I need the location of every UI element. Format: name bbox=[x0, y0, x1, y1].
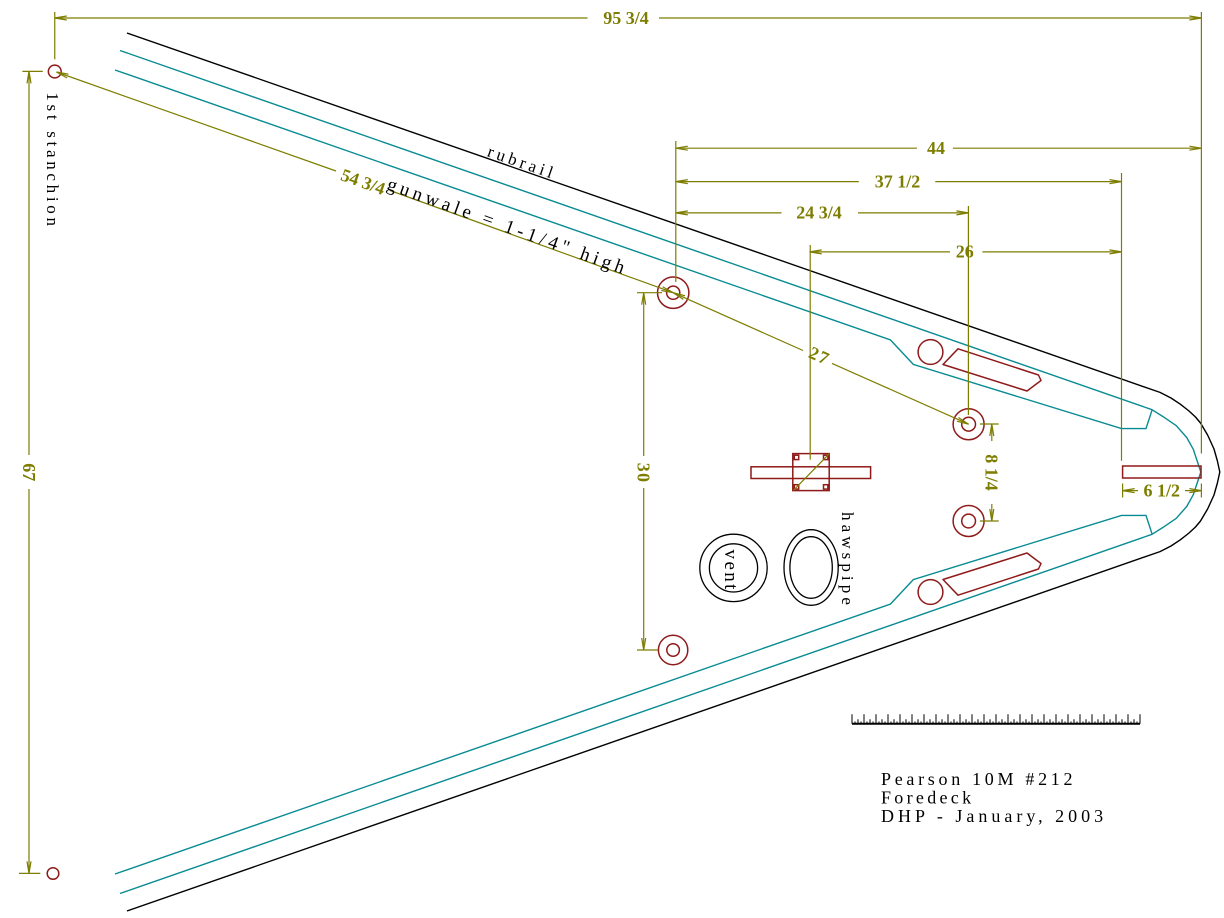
svg-text:67: 67 bbox=[19, 463, 39, 481]
svg-text:8 1/4: 8 1/4 bbox=[982, 454, 1002, 491]
svg-text:37 1/2: 37 1/2 bbox=[875, 171, 921, 191]
svg-text:vent: vent bbox=[720, 550, 741, 592]
svg-text:26: 26 bbox=[956, 242, 974, 262]
svg-text:30: 30 bbox=[634, 463, 654, 484]
svg-text:24 3/4: 24 3/4 bbox=[796, 203, 842, 223]
svg-text:95 3/4: 95 3/4 bbox=[603, 8, 649, 28]
svg-text:6 1/2: 6 1/2 bbox=[1143, 480, 1180, 500]
svg-text:DHP - January, 2003: DHP - January, 2003 bbox=[881, 806, 1107, 826]
svg-text:44: 44 bbox=[927, 138, 945, 158]
svg-text:Pearson 10M #212: Pearson 10M #212 bbox=[881, 769, 1076, 789]
svg-text:hawspipe: hawspipe bbox=[838, 512, 857, 609]
svg-text:Foredeck: Foredeck bbox=[881, 788, 974, 808]
svg-text:1st stanchion: 1st stanchion bbox=[43, 92, 62, 229]
